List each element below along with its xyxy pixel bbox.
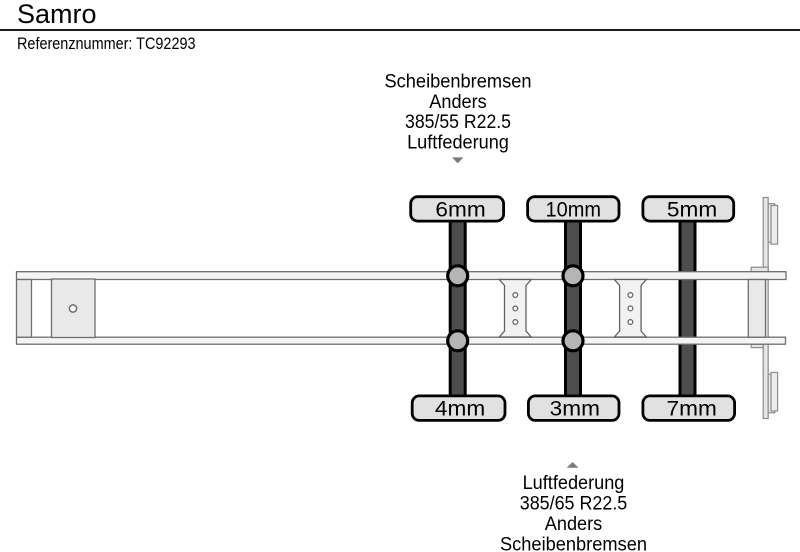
- svg-text:Anders: Anders: [429, 92, 486, 113]
- svg-text:Anders: Anders: [545, 514, 602, 535]
- svg-text:Luftfederung: Luftfederung: [407, 133, 509, 154]
- svg-text:385/65 R22.5: 385/65 R22.5: [520, 494, 628, 515]
- svg-text:Luftfederung: Luftfederung: [523, 473, 625, 494]
- svg-text:10mm: 10mm: [546, 199, 602, 222]
- svg-text:6mm: 6mm: [435, 199, 485, 222]
- svg-text:3mm: 3mm: [550, 398, 600, 421]
- svg-text:5mm: 5mm: [667, 199, 717, 222]
- svg-text:Scheibenbremsen: Scheibenbremsen: [385, 71, 532, 92]
- svg-text:7mm: 7mm: [667, 398, 717, 421]
- svg-text:4mm: 4mm: [435, 398, 485, 421]
- svg-text:Scheibenbremsen: Scheibenbremsen: [500, 534, 647, 552]
- svg-text:385/55 R22.5: 385/55 R22.5: [405, 112, 511, 133]
